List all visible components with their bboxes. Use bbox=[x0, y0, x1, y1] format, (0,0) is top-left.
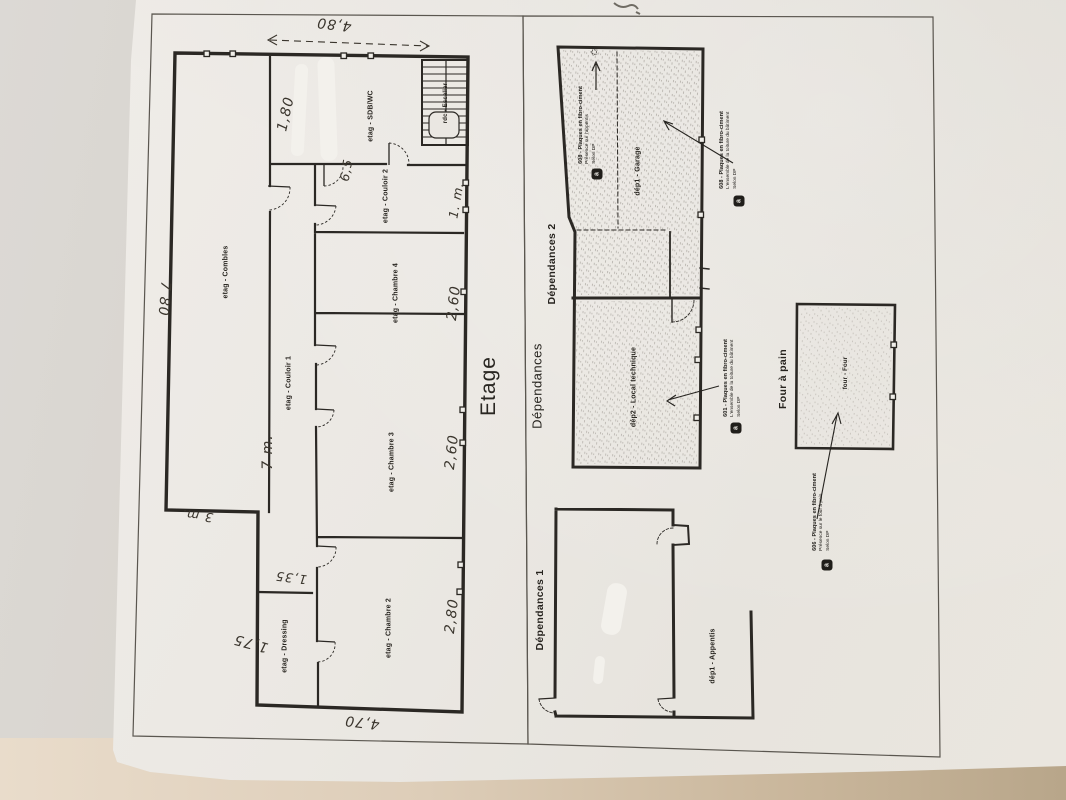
dim-1-35: 1,35 bbox=[274, 569, 307, 588]
asbestos-badge-icon: a bbox=[822, 560, 833, 571]
asbestos-badge-icon: a bbox=[731, 423, 742, 434]
room-label-local-technique: dép2 - Local technique bbox=[631, 347, 638, 427]
dim-1-m: 1. m. bbox=[445, 180, 466, 219]
dim-2-80: 2,80 bbox=[442, 598, 462, 635]
page-title-dependances: Dépendances bbox=[530, 343, 545, 429]
north-star-icon: ✩ bbox=[590, 48, 601, 56]
room-label-garage: dép1 - Garage bbox=[635, 146, 642, 195]
room-label-escalier: rdc - Escalier bbox=[443, 83, 449, 124]
annotation-line: Selon DP bbox=[733, 111, 739, 189]
dim-1-80: 1,80 bbox=[274, 95, 298, 133]
dim-6-5: 6,5 bbox=[337, 157, 356, 182]
annotation-line: L'ensemble de la toiture du bâtiment bbox=[726, 111, 732, 189]
label-layer: etag - Combles etag - SDB/WC rdc - Escal… bbox=[0, 0, 1066, 800]
plan-title-four-a-pain: Four à pain bbox=[777, 349, 789, 409]
plan-title-dependances-2: Dépendances 2 bbox=[546, 224, 558, 305]
dim-4-70: 4,70 bbox=[344, 712, 381, 732]
room-label-chambre3: etag - Chambre 3 bbox=[389, 432, 396, 492]
annotation-garage-roof: 608 - Plaques en fibro-ciment L'ensemble… bbox=[719, 111, 739, 189]
page-title-etage: Etage bbox=[477, 356, 501, 416]
photo-scene: etag - Combles etag - SDB/WC rdc - Escal… bbox=[0, 0, 1066, 800]
room-label-combles: etag - Combles bbox=[223, 246, 230, 299]
annotation-line: Selon DP bbox=[737, 339, 743, 417]
dim-7-80: 7 80 bbox=[154, 281, 173, 317]
asbestos-badge-icon: a bbox=[592, 169, 603, 180]
asbestos-badge-icon: a bbox=[734, 196, 745, 207]
dim-3-m: 3 m. bbox=[180, 507, 214, 526]
room-label-couloir2: etag - Couloir 2 bbox=[383, 169, 390, 223]
dim-4-80: 4,80 bbox=[316, 14, 353, 34]
room-label-chambre2: etag - Chambre 2 bbox=[386, 598, 393, 658]
annotation-line: Selon DP bbox=[826, 473, 832, 551]
dim-2-60-b: 2,60 bbox=[444, 285, 464, 322]
plan-title-dependances-1: Dépendances 1 bbox=[534, 570, 546, 651]
room-label-chambre4: etag - Chambre 4 bbox=[393, 263, 400, 323]
dim-1-75: 1,75 bbox=[232, 631, 270, 656]
dim-7-m: 7 m. bbox=[260, 434, 276, 469]
room-label-appentis: dép1 - Appentis bbox=[710, 628, 717, 683]
annotation-line: L'ensemble de la toiture du bâtiment bbox=[730, 339, 736, 417]
dim-2-60-a: 2,60 bbox=[442, 434, 462, 471]
room-label-sdb-wc: etag - SDB/WC bbox=[368, 90, 375, 142]
annotation-garage-north: 608 - Plaques en fibro-ciment Présence s… bbox=[578, 86, 598, 164]
room-label-four: four - Four bbox=[843, 357, 849, 390]
annotation-local-technique: 601 - Plaques en fibro-ciment L'ensemble… bbox=[723, 339, 743, 417]
annotation-line: Selon DP bbox=[592, 86, 598, 164]
room-label-couloir1: etag - Couloir 1 bbox=[286, 356, 293, 410]
room-label-dressing: etag - Dressing bbox=[282, 619, 289, 673]
annotation-four-a-pain: 606 - Plaques en fibro-ciment Présence s… bbox=[812, 473, 832, 551]
